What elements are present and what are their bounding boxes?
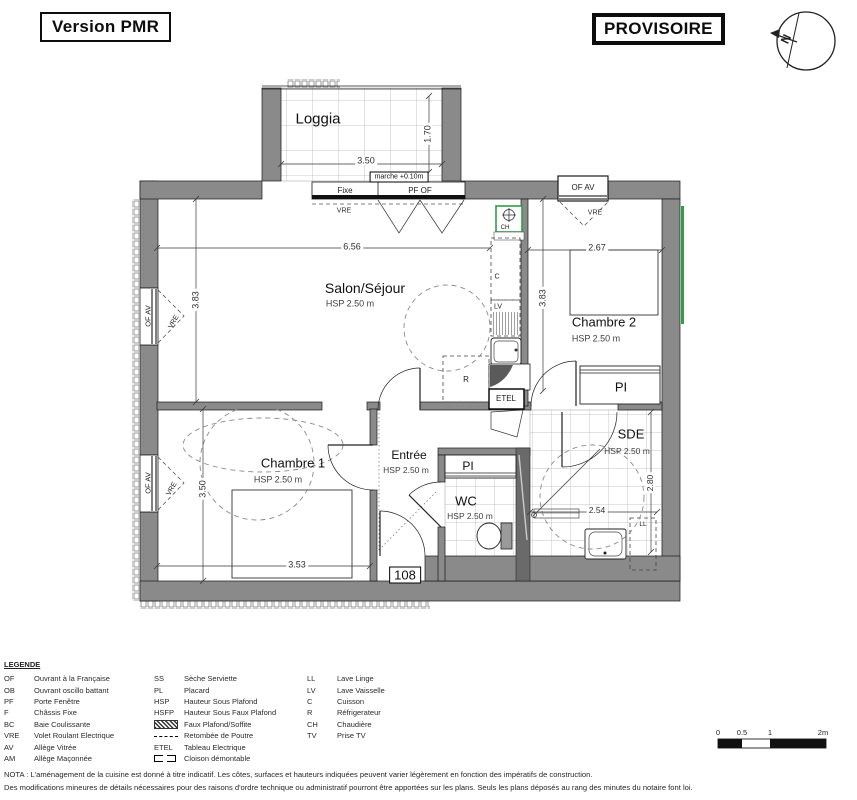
partition-wc-west-bottom: [438, 527, 445, 581]
legend-row: OBOuvrant oscillo battant: [4, 684, 114, 695]
legend-row: HSFPHauteur Sous Faux Plafond: [154, 707, 276, 718]
facade-green-strip: [681, 206, 684, 324]
pmr-circle-salon: [404, 285, 490, 371]
legend: LEGENDE OFOuvrant à la FrançaiseOBOuvran…: [4, 660, 624, 673]
partition-salon-chambre1: [157, 402, 322, 410]
legend-abbr: OB: [4, 686, 34, 695]
scale-seg-2: [770, 739, 826, 748]
scale-bar: [718, 739, 826, 748]
legend-row: Faux Plafond/Soffite: [154, 719, 276, 730]
legend-label: Tableau Electrique: [184, 743, 246, 752]
legend-label: Lave Linge: [337, 674, 374, 683]
wall-top-c: [608, 181, 680, 199]
wall-bottom-thick: [425, 556, 680, 581]
legend-row: LLLave Linge: [307, 673, 385, 684]
fridge: [443, 356, 489, 402]
legend-abbr: ETEL: [154, 743, 184, 752]
legend-abbr: SS: [154, 674, 184, 683]
version-title-box: Version PMR: [40, 12, 171, 42]
nota-line-2: Des modifications mineures de détails né…: [4, 782, 854, 795]
legend-abbr: [154, 755, 184, 762]
door-chambre2: [531, 361, 576, 406]
provisoire-label: PROVISOIRE: [604, 19, 713, 38]
legend-abbr: TV: [307, 731, 337, 740]
legend-title: LEGENDE: [4, 660, 624, 669]
door-salon-entree: [378, 368, 420, 410]
door-apartment-entry: [380, 511, 425, 556]
legend-abbr: LV: [307, 686, 337, 695]
legend-abbr: AV: [4, 743, 34, 752]
legend-label: Allège Maçonnée: [34, 754, 92, 763]
boiler-shelf: [494, 232, 524, 240]
legend-row: PFPorte Fenêtre: [4, 696, 114, 707]
legend-abbr: F: [4, 708, 34, 717]
legend-label: Faux Plafond/Soffite: [184, 720, 251, 729]
legend-row: OFOuvrant à la Française: [4, 673, 114, 684]
legend-label: Lave Vaisselle: [337, 686, 385, 695]
legend-label: Hauteur Sous Faux Plafond: [184, 708, 276, 717]
insulation-loggia-top: [287, 79, 340, 88]
pmr-ellipse-chambre1: [183, 418, 343, 472]
scale-seg-1: [718, 739, 742, 748]
door-wc: [409, 482, 441, 527]
legend-abbr: HSP: [154, 697, 184, 706]
window-left-2: [140, 455, 158, 512]
loggia-floor: [281, 88, 442, 181]
legend-abbr: LL: [307, 674, 337, 683]
scale-tick-2m: 2m: [818, 728, 828, 737]
compass-circle: [777, 12, 835, 70]
scale-tick-1: 1: [768, 728, 772, 737]
entree-zone-boundary: [379, 413, 436, 550]
legend-row: BCBaie Coulissante: [4, 719, 114, 730]
loggia-door-leaves: [378, 200, 464, 233]
wall-loggia-right: [442, 88, 461, 181]
door-chambre1: [328, 445, 373, 490]
nota-footer: NOTA : L'aménagement de la cuisine est d…: [4, 769, 854, 794]
legend-label: Ouvrant oscillo battant: [34, 686, 109, 695]
scale-tick-0: 0: [716, 728, 720, 737]
legend-label: Allège Vitrée: [34, 743, 76, 752]
dishwasher-hatch: [492, 312, 519, 335]
wall-top-b: [461, 181, 558, 199]
legend-row: ETELTableau Electrique: [154, 741, 276, 752]
closet-chambre2: [580, 366, 660, 404]
compass-arrowhead-icon: [770, 29, 780, 38]
vre-window-left-1: [158, 290, 184, 343]
legend-label: Retombée de Poutre: [184, 731, 253, 740]
nota-line-1: NOTA : L'aménagement de la cuisine est d…: [4, 769, 854, 782]
compass: [770, 12, 835, 70]
toilet-bowl: [477, 523, 501, 549]
legend-label: Réfrigerateur: [337, 708, 381, 717]
legend-row: TVPrise TV: [307, 730, 385, 741]
legend-row: RRéfrigerateur: [307, 707, 385, 718]
legend-beam-icon: [154, 736, 178, 737]
legend-label: Baie Coulissante: [34, 720, 90, 729]
legend-label: Volet Roulant Electrique: [34, 731, 114, 740]
insulation-left: [132, 199, 139, 601]
window-left-1: [140, 288, 158, 345]
legend-row: VREVolet Roulant Electrique: [4, 730, 114, 741]
legend-abbr: [154, 720, 184, 729]
legend-row: CHChaudière: [307, 719, 385, 730]
version-label: Version PMR: [52, 17, 159, 36]
legend-row: HSPHauteur Sous Plafond: [154, 696, 276, 707]
partition-chambre1-east-top: [370, 409, 377, 445]
legend-row: CCuisson: [307, 696, 385, 707]
legend-label: Ouvrant à la Française: [34, 674, 110, 683]
vre-window-left-2: [158, 457, 184, 510]
legend-row: SSSèche Serviette: [154, 673, 276, 684]
bed-chambre2: [570, 250, 658, 315]
legend-label: Placard: [184, 686, 209, 695]
partition-wc-west-top: [438, 455, 445, 482]
legend-hatch-icon: [154, 720, 178, 729]
etel-box: [489, 389, 524, 409]
window-loggia-band: [312, 182, 465, 199]
legend-row: AVAllège Vitrée: [4, 741, 114, 752]
closet-wc: [445, 455, 516, 478]
wall-right: [662, 199, 680, 581]
legend-abbr: R: [307, 708, 337, 717]
legend-label: Chaudière: [337, 720, 372, 729]
provisoire-title-box: PROVISOIRE: [592, 13, 725, 45]
legend-label: Cuisson: [337, 697, 364, 706]
wall-top-a: [140, 181, 262, 199]
legend-abbr: PF: [4, 697, 34, 706]
hob-cuisson: [491, 238, 520, 300]
window-top: [558, 176, 608, 201]
wall-bottom: [140, 581, 680, 601]
floor-plan-sheet: Loggia3.501.70marche +0.10mFixePF OFVREO…: [0, 0, 857, 800]
demountable-partition: [491, 410, 523, 437]
legend-row: Retombée de Poutre: [154, 730, 276, 741]
legend-row: PLPlacard: [154, 684, 276, 695]
wall-left-mid: [140, 345, 158, 455]
legend-abbr: HSFP: [154, 708, 184, 717]
legend-abbr: PL: [154, 686, 184, 695]
insulation-bottom: [140, 601, 430, 609]
vre-window-top: [560, 202, 608, 226]
legend-abbr: [154, 735, 184, 737]
legend-abbr: OF: [4, 674, 34, 683]
legend-column-2: SSSèche ServiettePLPlacardHSPHauteur Sou…: [154, 673, 276, 764]
legend-label: Hauteur Sous Plafond: [184, 697, 257, 706]
legend-row: AMAllège Maçonnée: [4, 753, 114, 764]
floor-plan-drawing: [0, 0, 857, 800]
legend-label: Porte Fenêtre: [34, 697, 80, 706]
sink-faucet-icon: [515, 349, 518, 352]
legend-label: Sèche Serviette: [184, 674, 237, 683]
scale-tick-0.5: 0.5: [737, 728, 747, 737]
bed-chambre1: [232, 490, 352, 578]
legend-abbr: C: [307, 697, 337, 706]
legend-abbr: CH: [307, 720, 337, 729]
legend-abbr: VRE: [4, 731, 34, 740]
partition-salon-entree: [420, 402, 490, 410]
legend-row: LVLave Vaisselle: [307, 684, 385, 695]
legend-abbr: BC: [4, 720, 34, 729]
toilet-tank: [501, 523, 512, 549]
legend-abbr: AM: [4, 754, 34, 763]
legend-label: Châssis Fixe: [34, 708, 77, 717]
legend-label: Cloison démontable: [184, 754, 250, 763]
legend-row: Cloison démontable: [154, 753, 276, 764]
legend-column-1: OFOuvrant à la FrançaiseOBOuvrant oscill…: [4, 673, 114, 764]
legend-partition-icon: [154, 755, 176, 762]
partition-chambre1-east-bottom: [370, 490, 377, 581]
legend-row: FChâssis Fixe: [4, 707, 114, 718]
legend-column-3: LLLave LingeLVLave VaisselleCCuissonRRéf…: [307, 673, 385, 741]
legend-label: Prise TV: [337, 731, 366, 740]
washbasin-drain-icon: [604, 552, 607, 555]
